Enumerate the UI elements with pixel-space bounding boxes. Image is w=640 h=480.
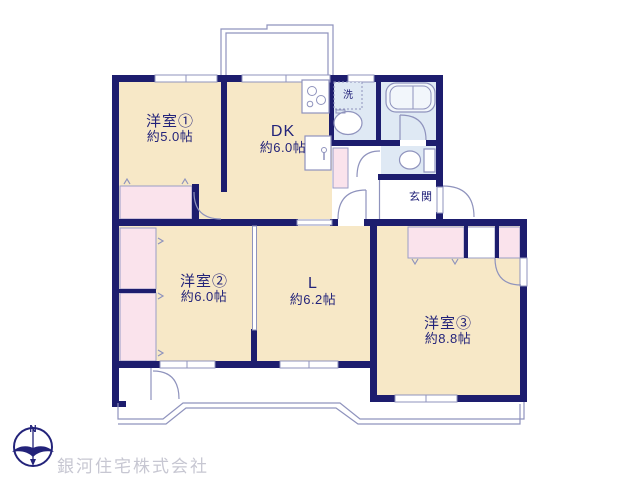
dk-name: DK [260,123,307,141]
room3-doorway [520,258,527,286]
window-washroom [348,75,374,82]
room3-label: 洋室③ 約8.8帖 [424,315,472,347]
closet-room3-middle [466,227,495,258]
door-arc-porch [153,371,179,399]
dk-label: DK 約6.0帖 [260,123,307,156]
floorplan-canvas: 洋室① 約5.0帖 DK 約6.0帖 洋室② 約6.0帖 L 約6.2帖 洋室③… [0,0,640,480]
stove-icon [302,80,329,113]
entrance-label: 玄関 [409,191,433,204]
balcony-bottom-outer [118,402,524,419]
closet-room3-left [408,227,464,258]
washing-machine-label: 洗 [343,90,353,102]
room2-label: 洋室② 約6.0帖 [180,273,228,305]
compass-north-label: N [29,424,36,436]
room2-area: 約6.0帖 [180,290,228,305]
hall-storage [333,148,348,188]
room2-name: 洋室② [180,273,228,290]
closet-room3-right [498,227,520,258]
living-area: 約6.2帖 [290,293,337,308]
entrance-doorway [437,187,443,213]
closet-room2-lower [120,293,156,361]
room3-name: 洋室③ [424,315,472,332]
toilet-tank [424,149,435,172]
washbasin-icon [334,112,362,135]
opening-hall [297,220,332,225]
door-arc-toilet [357,151,380,177]
living-label: L 約6.2帖 [290,275,337,308]
sliding-partition [253,226,257,330]
room1-area: 約5.0帖 [146,130,194,145]
toilet-icon [400,151,421,169]
door-arc-living [338,190,366,219]
living-name: L [290,275,337,293]
closet-room2-upper [120,228,156,289]
floor-room2-living [119,226,377,361]
room1-name: 洋室① [146,113,194,130]
room3-area: 約8.8帖 [424,332,472,347]
closet-room1 [120,186,192,219]
dk-area: 約6.0帖 [260,141,307,156]
door-arc-entrance [443,186,474,217]
company-watermark: 銀河住宅株式会社 [57,452,209,477]
room1-label: 洋室① 約5.0帖 [146,113,194,145]
balcony-top-inner [226,33,328,75]
kitchen-sink-icon [305,136,331,170]
floorplan-drawing [0,0,640,480]
